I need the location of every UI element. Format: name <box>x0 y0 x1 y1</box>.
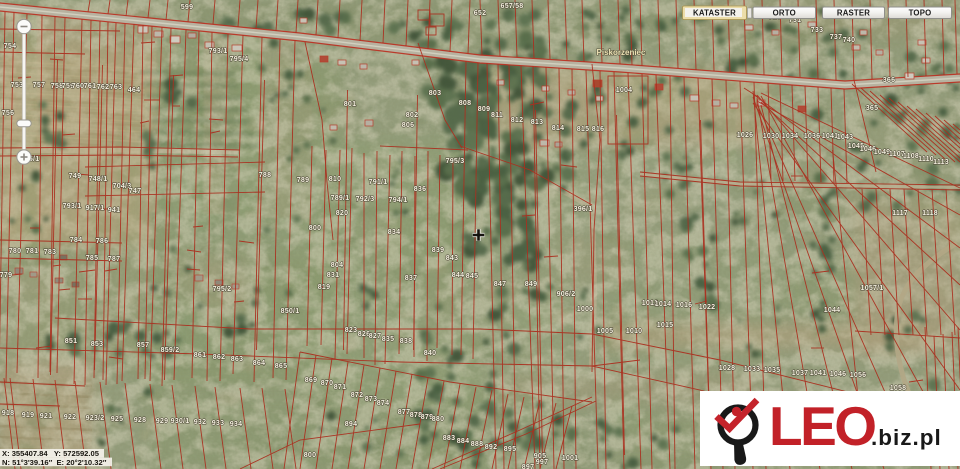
svg-text:763: 763 <box>110 83 122 91</box>
svg-text:1056: 1056 <box>850 371 867 379</box>
svg-text:847: 847 <box>494 280 506 288</box>
svg-text:921: 921 <box>40 412 52 420</box>
svg-text:888: 888 <box>471 440 483 448</box>
svg-text:845: 845 <box>466 272 478 280</box>
svg-text:933: 933 <box>212 419 224 427</box>
svg-text:464: 464 <box>128 86 140 94</box>
svg-text:1037: 1037 <box>792 369 809 377</box>
svg-text:811: 811 <box>491 111 503 119</box>
svg-text:894: 894 <box>345 420 357 428</box>
svg-text:657/58: 657/58 <box>501 2 524 10</box>
svg-text:851: 851 <box>65 337 77 345</box>
svg-text:754: 754 <box>4 42 16 50</box>
svg-text:786: 786 <box>96 237 108 245</box>
svg-text:816: 816 <box>592 125 604 133</box>
svg-text:810: 810 <box>329 175 341 183</box>
svg-text:1058: 1058 <box>890 384 907 392</box>
svg-text:870: 870 <box>321 379 333 387</box>
svg-text:748/1: 748/1 <box>89 175 108 183</box>
svg-text:1010: 1010 <box>626 327 643 335</box>
svg-text:820: 820 <box>336 209 348 217</box>
svg-text:844: 844 <box>452 271 464 279</box>
svg-text:837: 837 <box>405 274 417 282</box>
svg-text:861: 861 <box>194 351 206 359</box>
svg-text:803: 803 <box>429 89 441 97</box>
svg-text:1000: 1000 <box>577 305 594 313</box>
svg-text:396/1: 396/1 <box>574 205 593 213</box>
svg-text:1041: 1041 <box>810 369 827 377</box>
svg-text:800: 800 <box>304 451 316 459</box>
svg-text:747: 747 <box>129 187 141 195</box>
svg-text:917/1: 917/1 <box>86 204 105 212</box>
svg-text:780: 780 <box>9 247 21 255</box>
svg-text:815: 815 <box>577 125 589 133</box>
svg-text:788: 788 <box>259 171 271 179</box>
svg-text:1030: 1030 <box>763 132 780 140</box>
svg-text:853: 853 <box>91 340 103 348</box>
svg-text:789: 789 <box>297 176 309 184</box>
svg-text:1004: 1004 <box>616 86 633 94</box>
svg-text:1057/1: 1057/1 <box>861 284 884 292</box>
svg-text:1118: 1118 <box>922 209 938 217</box>
svg-text:757: 757 <box>33 81 45 89</box>
svg-text:930/1: 930/1 <box>171 417 190 425</box>
svg-text:1015: 1015 <box>657 321 674 329</box>
svg-text:862: 862 <box>213 353 225 361</box>
svg-text:1005: 1005 <box>597 327 614 335</box>
svg-text:1033: 1033 <box>744 365 761 373</box>
svg-text:865: 865 <box>275 362 287 370</box>
svg-text:1108: 1108 <box>903 152 919 160</box>
svg-text:831: 831 <box>327 271 339 279</box>
svg-text:365: 365 <box>866 104 878 112</box>
svg-text:835: 835 <box>382 335 394 343</box>
svg-text:Piskorzeniec: Piskorzeniec <box>597 48 646 57</box>
svg-text:874: 874 <box>377 399 389 407</box>
svg-text:836: 836 <box>414 185 426 193</box>
svg-text:652: 652 <box>474 9 486 17</box>
svg-text:1110: 1110 <box>918 155 934 163</box>
svg-text:892: 892 <box>485 443 497 451</box>
svg-text:906/2: 906/2 <box>557 290 576 298</box>
svg-text:922: 922 <box>64 413 76 421</box>
svg-text:ORTO: ORTO <box>773 9 796 18</box>
svg-text:760: 760 <box>72 82 84 90</box>
svg-text:737: 737 <box>830 33 842 41</box>
svg-text:X: 355407.84 Y: 572592.05: X: 355407.84 Y: 572592.05 <box>2 449 100 458</box>
svg-text:864: 864 <box>253 359 265 367</box>
svg-text:TOPO: TOPO <box>909 9 932 18</box>
svg-text:843: 843 <box>446 254 458 262</box>
svg-text:1016: 1016 <box>676 301 693 309</box>
svg-text:785: 785 <box>86 254 98 262</box>
svg-text:827: 827 <box>369 332 381 340</box>
svg-text:1044: 1044 <box>824 306 841 314</box>
svg-text:1117: 1117 <box>892 209 908 217</box>
svg-text:.biz.pl: .biz.pl <box>871 425 942 450</box>
svg-text:1035: 1035 <box>764 366 781 374</box>
svg-text:761: 761 <box>84 82 96 90</box>
svg-text:800: 800 <box>309 224 321 232</box>
svg-text:872: 872 <box>351 391 363 399</box>
svg-text:873: 873 <box>365 395 377 403</box>
svg-text:794/1: 794/1 <box>389 196 408 204</box>
svg-text:812: 812 <box>511 116 523 124</box>
svg-text:779: 779 <box>0 271 12 279</box>
svg-text:N: 51°3'39.16″ E: 20°2'10.32″: N: 51°3'39.16″ E: 20°2'10.32″ <box>2 458 107 467</box>
svg-text:762: 762 <box>97 83 109 91</box>
svg-text:813: 813 <box>531 118 543 126</box>
svg-text:756: 756 <box>2 109 14 117</box>
svg-text:928: 928 <box>134 416 146 424</box>
svg-text:840: 840 <box>424 349 436 357</box>
svg-text:919: 919 <box>22 411 34 419</box>
svg-text:1014: 1014 <box>655 300 672 308</box>
svg-text:753: 753 <box>11 81 23 89</box>
svg-text:1026: 1026 <box>737 131 754 139</box>
svg-text:808: 808 <box>459 99 471 107</box>
svg-text:RASTER: RASTER <box>837 9 870 18</box>
svg-text:819: 819 <box>318 283 330 291</box>
svg-text:791/1: 791/1 <box>369 178 388 186</box>
svg-text:795/4: 795/4 <box>230 55 249 63</box>
svg-text:802: 802 <box>406 111 418 119</box>
svg-text:749: 749 <box>69 172 81 180</box>
svg-text:795/3: 795/3 <box>446 157 465 165</box>
svg-text:781: 781 <box>26 247 38 255</box>
svg-text:783: 783 <box>44 248 56 256</box>
svg-text:859/2: 859/2 <box>161 346 180 354</box>
svg-text:1022: 1022 <box>699 303 716 311</box>
svg-text:880: 880 <box>432 415 444 423</box>
svg-text:789/1: 789/1 <box>331 194 350 202</box>
svg-text:806: 806 <box>402 121 414 129</box>
svg-text:792/3: 792/3 <box>356 195 375 203</box>
svg-text:838: 838 <box>400 337 412 345</box>
svg-text:897: 897 <box>522 463 534 469</box>
svg-text:932: 932 <box>194 418 206 426</box>
svg-text:934: 934 <box>230 420 242 428</box>
svg-text:784: 784 <box>70 236 82 244</box>
svg-text:LEO: LEO <box>769 395 875 457</box>
svg-text:740: 740 <box>843 36 855 44</box>
svg-text:814: 814 <box>552 124 564 132</box>
svg-text:366: 366 <box>883 76 895 84</box>
svg-text:823: 823 <box>345 326 357 334</box>
svg-text:941: 941 <box>108 206 120 214</box>
svg-text:895: 895 <box>504 445 516 453</box>
svg-text:883: 883 <box>443 434 455 442</box>
svg-text:1036: 1036 <box>804 132 821 140</box>
svg-text:857: 857 <box>137 341 149 349</box>
svg-text:923/2: 923/2 <box>86 414 105 422</box>
svg-text:599: 599 <box>181 3 193 11</box>
svg-text:850/1: 850/1 <box>281 307 300 315</box>
svg-text:918: 918 <box>2 409 14 417</box>
svg-text:1113: 1113 <box>933 158 949 166</box>
svg-text:925: 925 <box>111 415 123 423</box>
svg-text:1028: 1028 <box>719 364 736 372</box>
svg-text:884: 884 <box>457 437 469 445</box>
svg-text:787: 787 <box>108 255 120 263</box>
svg-text:863: 863 <box>231 355 243 363</box>
svg-text:1001: 1001 <box>562 454 579 462</box>
svg-text:801: 801 <box>344 100 356 108</box>
svg-text:871: 871 <box>334 383 346 391</box>
svg-text:849: 849 <box>525 280 537 288</box>
svg-text:1034: 1034 <box>782 132 799 140</box>
svg-text:KATASTER: KATASTER <box>693 9 736 18</box>
svg-text:834: 834 <box>388 228 400 236</box>
svg-text:733: 733 <box>811 26 823 34</box>
svg-text:869: 869 <box>305 376 317 384</box>
svg-text:1046: 1046 <box>830 370 847 378</box>
svg-text:929: 929 <box>156 417 168 425</box>
svg-text:905: 905 <box>534 452 546 460</box>
svg-text:1043: 1043 <box>837 133 854 141</box>
svg-text:795/2: 795/2 <box>213 285 232 293</box>
svg-text:793/1: 793/1 <box>209 47 228 55</box>
svg-text:804: 804 <box>331 261 343 269</box>
svg-text:793/1: 793/1 <box>63 202 82 210</box>
svg-text:877: 877 <box>398 408 410 416</box>
svg-text:1049: 1049 <box>874 148 891 156</box>
svg-text:839: 839 <box>432 246 444 254</box>
svg-text:809: 809 <box>478 105 490 113</box>
